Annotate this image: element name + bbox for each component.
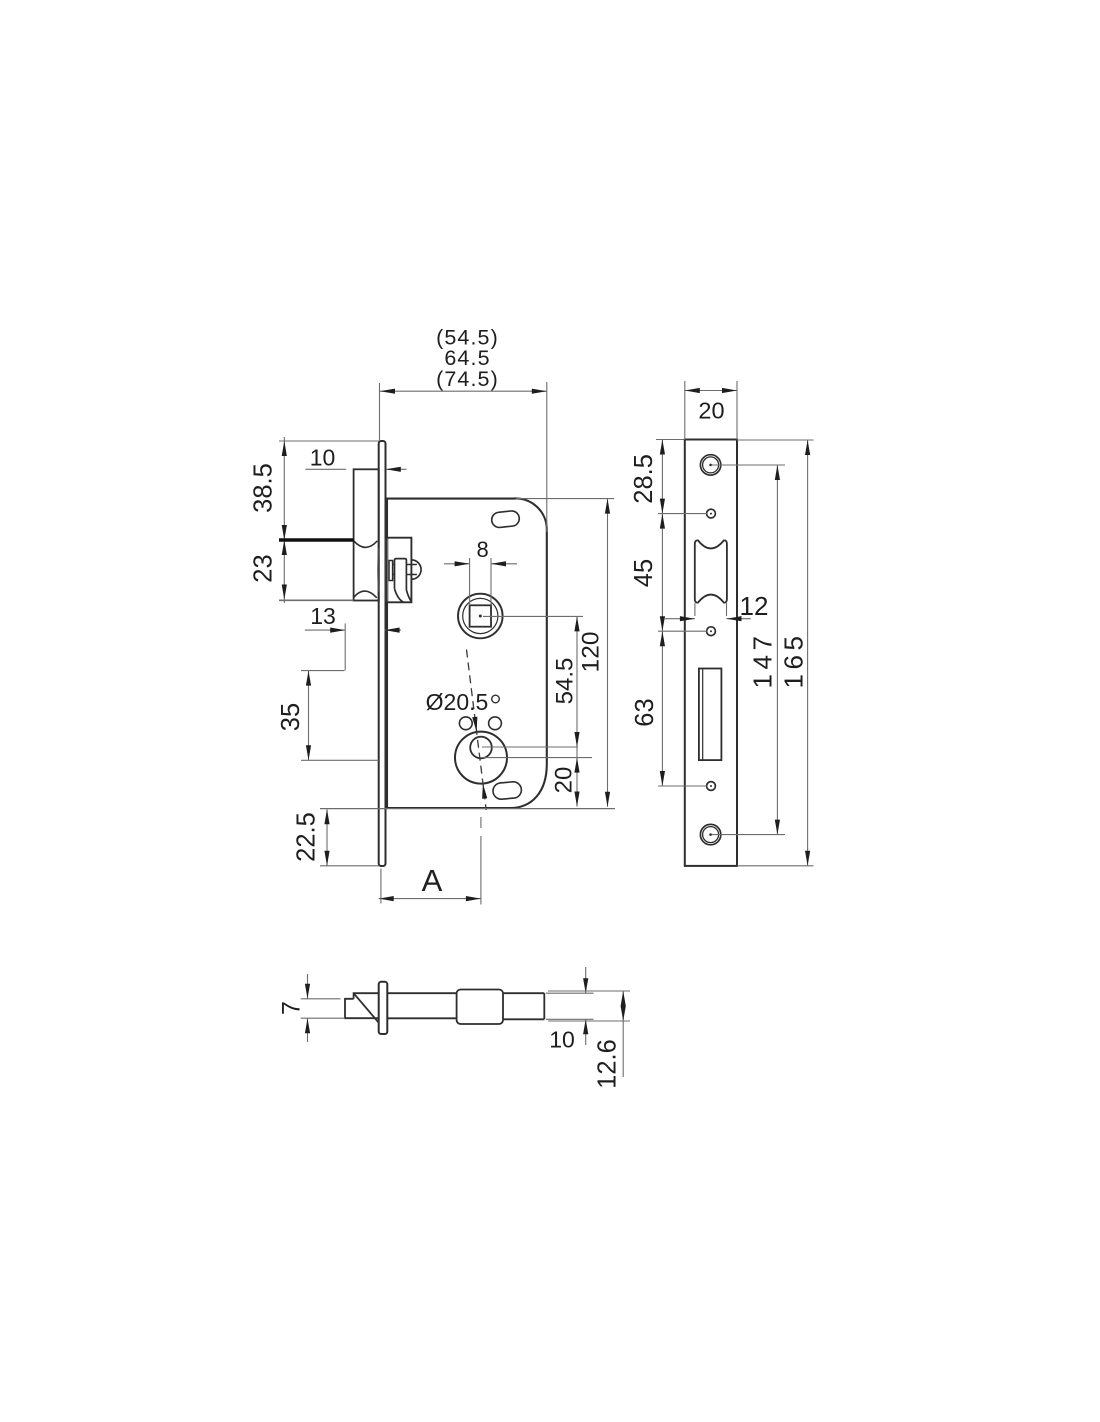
svg-text:120: 120 — [578, 632, 605, 673]
svg-text:20: 20 — [551, 767, 578, 794]
svg-text:28.5: 28.5 — [630, 454, 658, 504]
svg-text:54.5: 54.5 — [552, 658, 579, 705]
svg-text:8: 8 — [476, 537, 488, 562]
svg-text:63: 63 — [631, 698, 659, 726]
svg-text:10: 10 — [310, 444, 336, 470]
svg-text:(74.5): (74.5) — [436, 367, 499, 391]
svg-text:38.5: 38.5 — [250, 463, 278, 513]
svg-text:7: 7 — [278, 1001, 306, 1015]
svg-text:45: 45 — [630, 559, 658, 587]
svg-text:165: 165 — [779, 632, 809, 689]
svg-text:20: 20 — [698, 397, 724, 423]
svg-text:10: 10 — [549, 1027, 575, 1053]
svg-text:12: 12 — [740, 591, 769, 621]
svg-text:23: 23 — [250, 554, 278, 582]
svg-text:A: A — [422, 863, 443, 898]
svg-text:13: 13 — [310, 603, 336, 629]
svg-text:22.5: 22.5 — [293, 812, 321, 862]
svg-text:12.6: 12.6 — [594, 1039, 622, 1089]
svg-text:Ø20.5: Ø20.5 — [426, 689, 489, 715]
svg-text:147: 147 — [748, 632, 778, 689]
svg-text:35: 35 — [277, 703, 305, 731]
